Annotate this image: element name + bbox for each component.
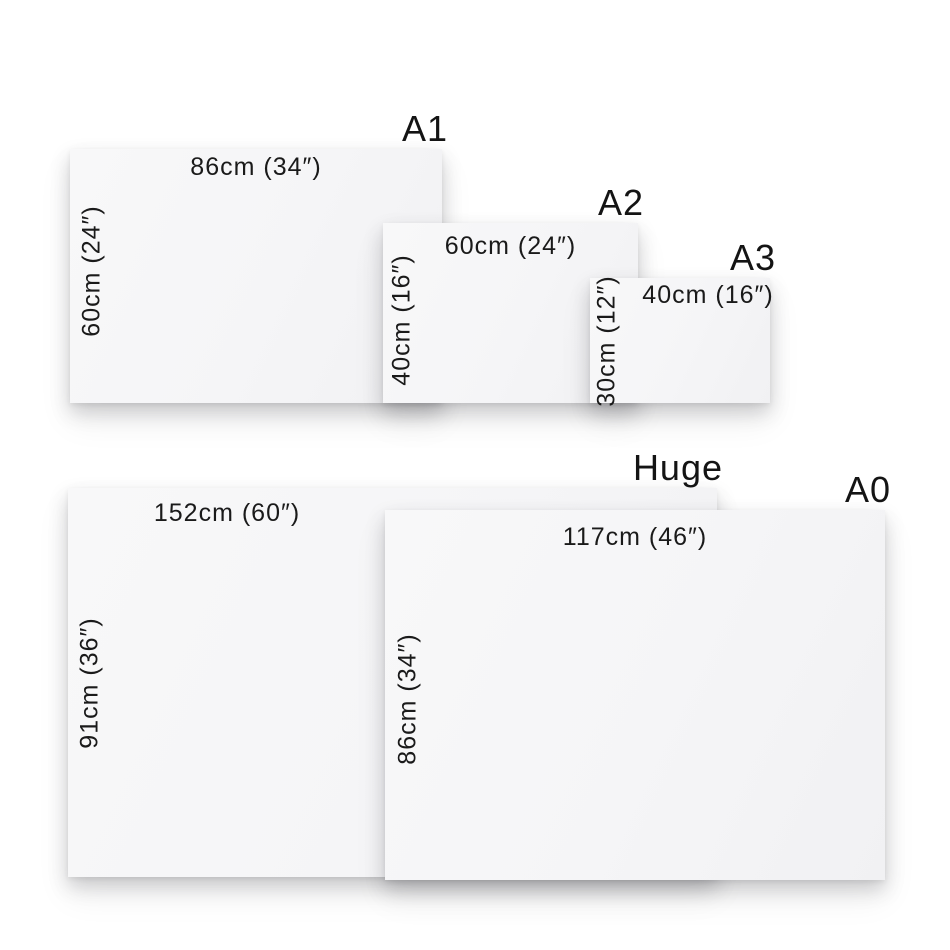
width-dimension-label-a2: 60cm (24″) bbox=[445, 233, 576, 261]
height-dimension-label-a2: 40cm (16″) bbox=[388, 254, 416, 385]
panel-title-a2: A2 bbox=[598, 185, 644, 221]
panel-title-a1: A1 bbox=[402, 111, 448, 147]
height-dimension-label-huge: 91cm (36″) bbox=[76, 617, 104, 748]
poster-panel-a0: A0 117cm (46″) 86cm (34″) bbox=[385, 510, 885, 880]
size-comparison-diagram: A1 86cm (34″) 60cm (24″) A2 60cm (24″) 4… bbox=[0, 0, 950, 950]
width-dimension-label-a0: 117cm (46″) bbox=[563, 524, 707, 552]
height-dimension-label-a3: 30cm (12″) bbox=[593, 275, 621, 406]
panel-title-a0: A0 bbox=[845, 472, 891, 508]
width-dimension-label-a1: 86cm (34″) bbox=[190, 154, 321, 182]
width-dimension-label-a3: 40cm (16″) bbox=[642, 282, 773, 310]
poster-panel-a3: A3 40cm (16″) 30cm (12″) bbox=[590, 278, 770, 403]
panel-title-huge: Huge bbox=[633, 450, 723, 486]
panel-title-a3: A3 bbox=[730, 240, 776, 276]
width-dimension-label-huge: 152cm (60″) bbox=[154, 500, 300, 528]
height-dimension-label-a1: 60cm (24″) bbox=[78, 205, 106, 336]
height-dimension-label-a0: 86cm (34″) bbox=[394, 633, 422, 764]
